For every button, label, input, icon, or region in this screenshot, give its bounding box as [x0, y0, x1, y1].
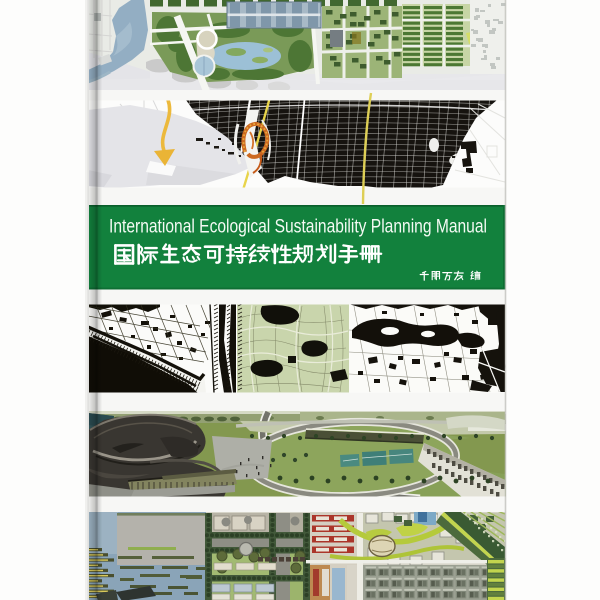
svg-text:International Ecological Susta: International Ecological Sustainability …	[109, 216, 487, 238]
